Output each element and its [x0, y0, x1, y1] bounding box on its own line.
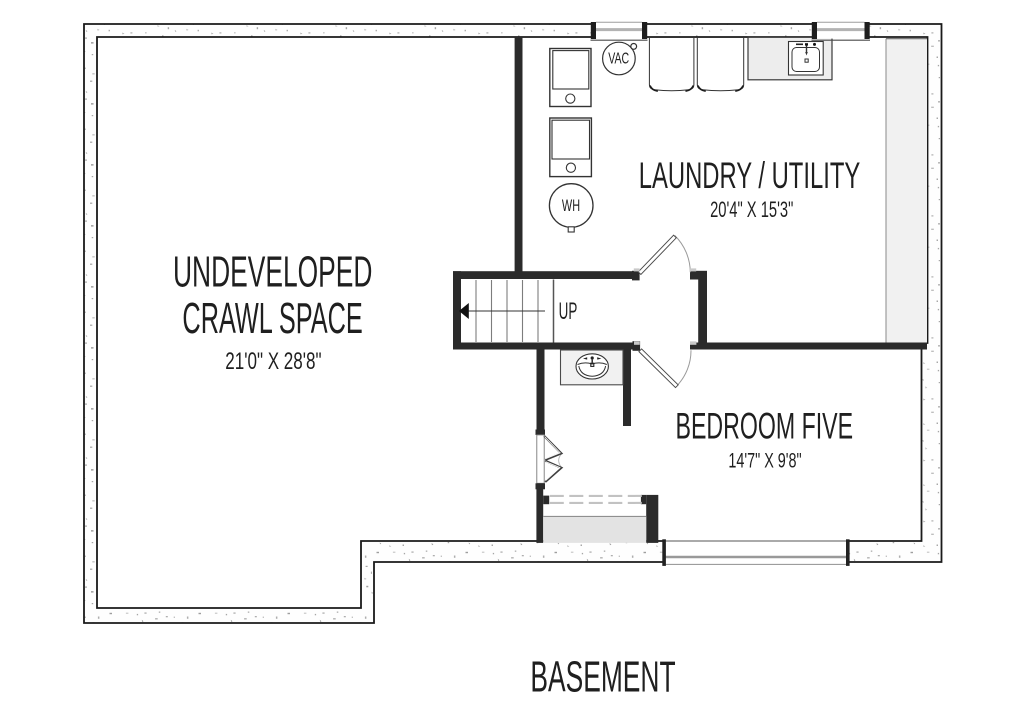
svg-text:20'4" X 15'3": 20'4" X 15'3"	[710, 198, 793, 223]
svg-text:14'7" X 9'8": 14'7" X 9'8"	[728, 448, 801, 473]
svg-text:21'0" X 28'8": 21'0" X 28'8"	[225, 348, 321, 375]
svg-text:UNDEVELOPED: UNDEVELOPED	[173, 246, 372, 296]
svg-text:BEDROOM FIVE: BEDROOM FIVE	[676, 405, 854, 447]
svg-text:UP: UP	[559, 298, 578, 325]
svg-text:CRAWL SPACE: CRAWL SPACE	[182, 294, 362, 343]
svg-text:VAC: VAC	[608, 49, 629, 67]
svg-text:WH: WH	[562, 196, 580, 215]
svg-text:BASEMENT: BASEMENT	[530, 651, 675, 701]
svg-text:LAUNDRY / UTILITY: LAUNDRY / UTILITY	[639, 155, 861, 197]
